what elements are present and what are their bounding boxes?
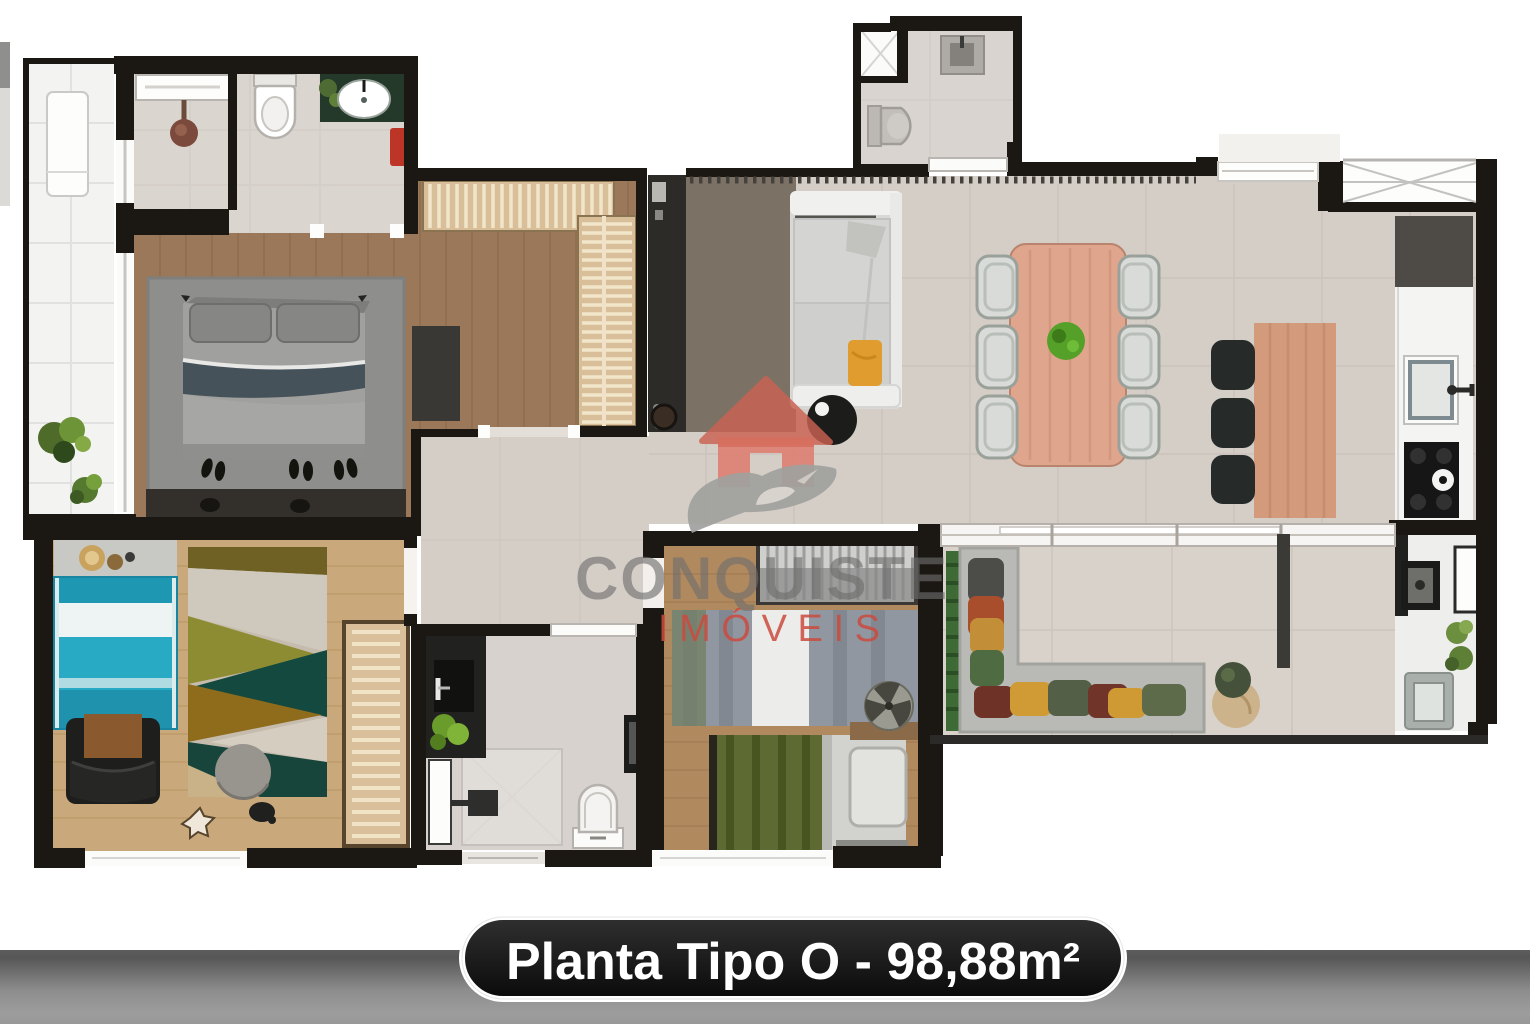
- svg-text:Planta Tipo O - 98,88m²: Planta Tipo O - 98,88m²: [506, 933, 1080, 991]
